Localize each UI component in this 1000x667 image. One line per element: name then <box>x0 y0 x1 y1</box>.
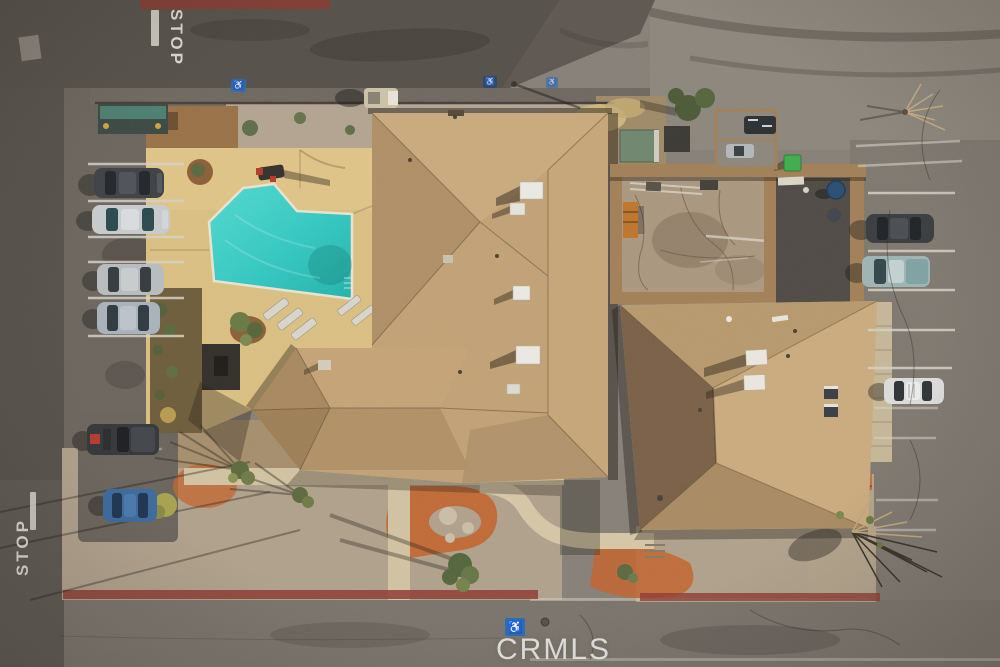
aerial-photo <box>0 0 1000 667</box>
aerial-photo-stage: STOP STOP ♿ ♿ ♿ ♿ CRMLS <box>0 0 1000 667</box>
crmls-watermark: CRMLS <box>496 633 611 667</box>
accessible-parking-icon: ♿ <box>546 77 558 88</box>
stop-road-marking-bottom: STOP <box>13 518 33 576</box>
stop-road-marking-top: STOP <box>166 9 186 67</box>
stop-limit-line-top <box>151 10 159 46</box>
accessible-parking-icon: ♿ <box>483 76 497 88</box>
photo-grain <box>0 0 1000 667</box>
accessible-parking-icon: ♿ <box>231 78 247 92</box>
